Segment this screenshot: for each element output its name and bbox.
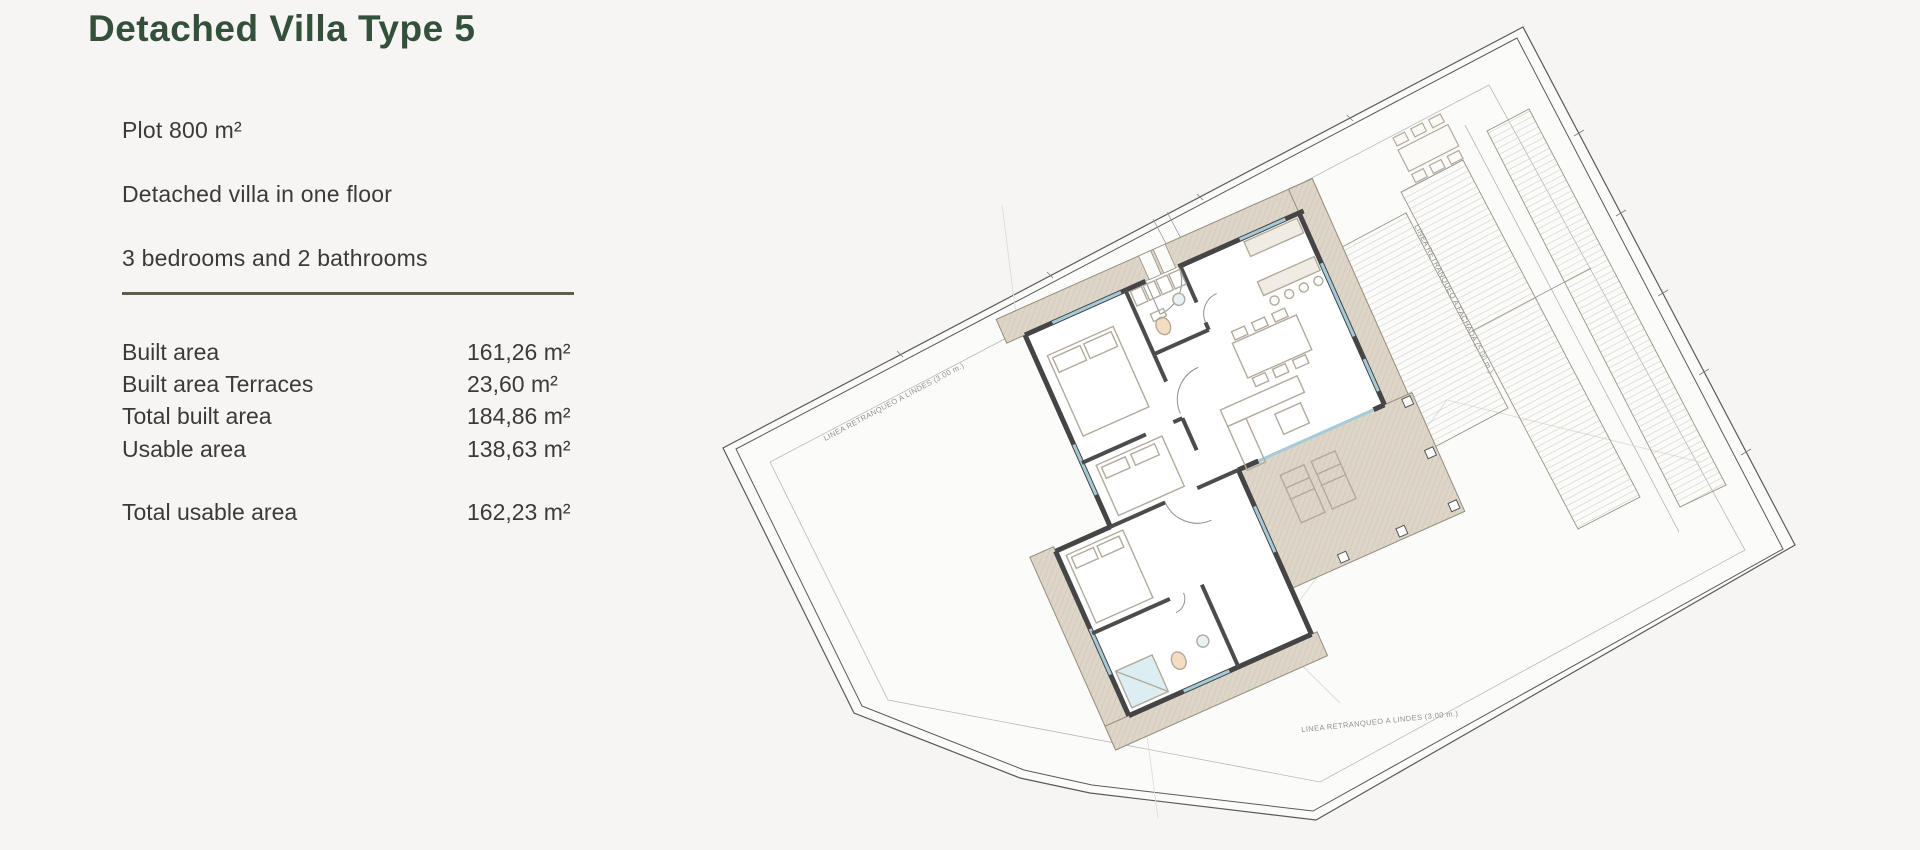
site-plan-drawing: LINEA RETRANQUEO A LINDES (3.00 m.) LINE… [0, 0, 1920, 850]
brochure-page: { "page": { "background": "#f6f5f3" }, "… [0, 0, 1920, 850]
